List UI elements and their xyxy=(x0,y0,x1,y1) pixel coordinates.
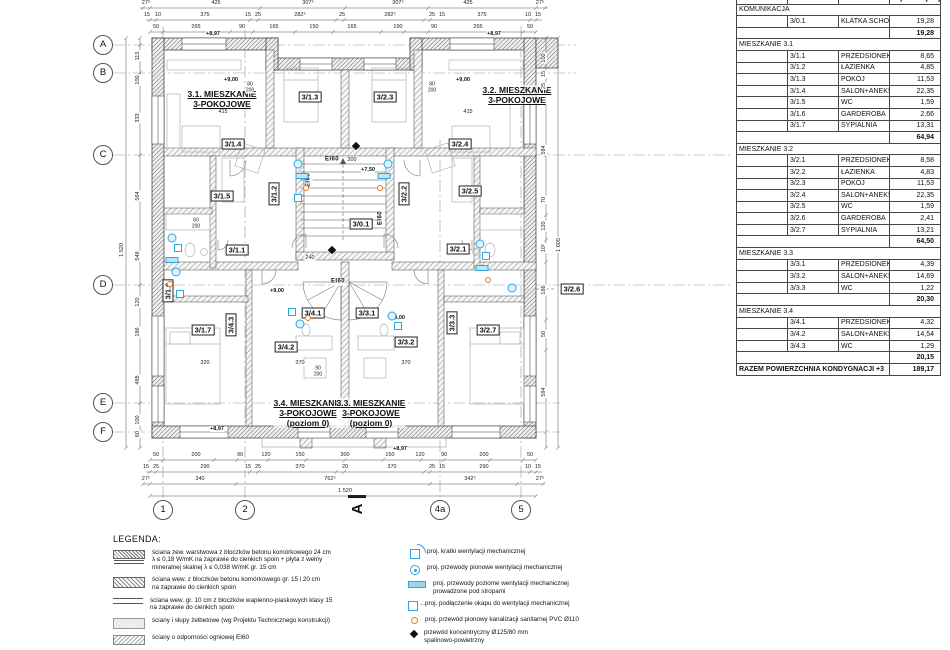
room-label: 3/4.3 xyxy=(226,314,237,337)
dimension-text: 265 xyxy=(190,24,201,30)
table-row: 3/2.3POKÓJ11,53 xyxy=(737,178,941,190)
table-cell xyxy=(737,271,788,283)
dimension-text: 60 200 xyxy=(192,219,200,230)
vent-grille-icon xyxy=(176,290,184,298)
vent-vertical-duct-icon xyxy=(172,268,181,277)
cell-area: 4,83 xyxy=(890,166,941,178)
dimension-text: 564 xyxy=(135,190,141,201)
dimension-text: 15 xyxy=(244,464,252,470)
cell-area: 13,21 xyxy=(890,224,941,236)
cell-nr: 3/1.2 xyxy=(788,62,839,74)
section-total: 20,15 xyxy=(890,352,941,364)
cell-room: POKÓJ xyxy=(839,74,890,86)
legend-item-text: proj. przewód pionowy kanalizacji sanita… xyxy=(425,616,579,624)
grand-total-label: RAZEM POWIERZCHNIA KONDYGNACJI +3 xyxy=(737,364,890,376)
cell-nr: 3/0.1 xyxy=(788,16,839,28)
grid-bubble: B xyxy=(93,63,113,83)
room-label: 3/4.2 xyxy=(275,342,298,353)
table-row: 3/1.6GARDEROBA2,66 xyxy=(737,108,941,120)
table-row: 3/3.1PRZEDSIONEK/SCHODY4,39 xyxy=(737,259,941,271)
table-cell xyxy=(737,340,788,352)
dimension-text: 425 xyxy=(462,0,473,6)
dimension-text: 307⁵ xyxy=(301,0,314,6)
level-marker: +9,00 xyxy=(456,77,470,83)
cell-nr: 3/1.6 xyxy=(788,108,839,120)
legend-item: proj. podłączenie okapu do wentylacji me… xyxy=(408,600,698,611)
vent-horizontal-duct-icon xyxy=(476,265,489,271)
legend-walls: LEGENDA: ściana zew. warstwowa z bloczkó… xyxy=(113,536,408,650)
section-total: 19,28 xyxy=(890,27,941,39)
table-row: 20,30 xyxy=(737,294,941,306)
legend-item: ściana wew. gr. 10 cm z bloczków wapienn… xyxy=(113,597,408,612)
room-label: 3/3.3 xyxy=(447,312,458,335)
dimension-text: 186 xyxy=(135,326,141,337)
cell-nr: 3/2.7 xyxy=(788,224,839,236)
cell-nr: 3/2.5 xyxy=(788,201,839,213)
legend-item: proj. przewód pionowy kanalizacji sanita… xyxy=(408,616,698,624)
table-row: 3/4.3WC1,29 xyxy=(737,340,941,352)
dimension-text: 10 xyxy=(154,12,162,18)
table-cell xyxy=(737,352,890,364)
vent-vertical-duct-icon xyxy=(388,312,397,321)
cell-room: SALON+ANEKS KUCHENNY xyxy=(839,190,890,202)
cell-room: ŁAZIENKA xyxy=(839,166,890,178)
dimension-text: 186 xyxy=(541,284,547,295)
table-cell xyxy=(737,108,788,120)
legend-item-text: proj. podłączenie okapu do wentylacji me… xyxy=(425,600,570,608)
dimension-text: 282⁵ xyxy=(383,12,396,18)
dimension-text: 27⁵ xyxy=(141,476,151,482)
cell-nr: 3/2.3 xyxy=(788,178,839,190)
dimension-text: 15 xyxy=(244,12,252,18)
dimension-text: 120 xyxy=(414,452,425,458)
dimension-text: 115 xyxy=(135,51,141,62)
table-row: 3/3.3WC1,22 xyxy=(737,282,941,294)
cell-nr: 3/3.1 xyxy=(788,259,839,271)
dimension-text: 25 xyxy=(338,12,346,18)
dimension-text: 90 xyxy=(440,452,448,458)
dimension-text: 25 xyxy=(152,464,160,470)
vent-horizontal-duct-icon xyxy=(166,257,179,263)
hatch1-legend-icon xyxy=(113,577,145,588)
table-row: 3/4.1PRZEDSIONEK/SCHODY4,32 xyxy=(737,317,941,329)
cell-area: 1,59 xyxy=(890,201,941,213)
dimension-text: 90 200 xyxy=(314,367,322,378)
legend-item-text: ściany o odporności ogniowej EI60 xyxy=(152,634,249,642)
cell-room: PRZEDSIONEK xyxy=(839,155,890,167)
vent-vertical-duct-icon xyxy=(294,160,303,169)
dimension-text: 80 200 xyxy=(428,83,436,94)
room-label: 3/2.1 xyxy=(447,244,470,255)
dimension-text: 307⁵ xyxy=(391,0,404,6)
dimension-text: 15 xyxy=(541,70,547,78)
grid-bubble: 4a xyxy=(430,500,450,520)
cell-area: 2,66 xyxy=(890,108,941,120)
level-marker: +9,00 xyxy=(270,288,284,294)
dimension-text: 25 xyxy=(254,464,262,470)
table-row: MIESZKANIE 3.3 xyxy=(737,248,941,260)
dimension-text: 165 xyxy=(268,24,279,30)
dimension-text: 282⁵ xyxy=(293,12,306,18)
section-name: MIESZKANIE 3.2 xyxy=(737,143,941,155)
dimension-text: 290 xyxy=(199,464,210,470)
legend-item: ściana wew. z bloczków betonu komórkoweg… xyxy=(113,576,408,591)
table-cell xyxy=(737,317,788,329)
room-label: 3/1.3 xyxy=(299,92,322,103)
dimension-text: 370 xyxy=(400,360,411,366)
dimension-text: 415 xyxy=(217,109,228,115)
apartment-title: 3.4. MIESZKANIE 3-POKOJOWE (poziom 0) xyxy=(274,398,343,428)
pvc-pipe-icon xyxy=(305,315,311,321)
grid-bubble: F xyxy=(93,422,113,442)
dimension-text: 25 xyxy=(428,12,436,18)
dimension-text: 50 xyxy=(152,24,160,30)
table-cell xyxy=(737,155,788,167)
grid-bubble: 5 xyxy=(511,500,531,520)
cell-nr: 3/1.3 xyxy=(788,74,839,86)
legend-item: proj. przewody poziome wentylacji mechan… xyxy=(408,580,698,595)
cell-area: 4,39 xyxy=(890,259,941,271)
cell-room: WC xyxy=(839,340,890,352)
room-label: 3/0.1 xyxy=(350,219,373,230)
table-row: 3/1.2ŁAZIENKA4,85 xyxy=(737,62,941,74)
cell-area: 13,31 xyxy=(890,120,941,132)
flue-legend-icon xyxy=(410,630,418,638)
cell-room: GARDEROBA xyxy=(839,213,890,225)
cell-area: 1,22 xyxy=(890,282,941,294)
vent-vertical-duct-icon xyxy=(296,320,305,329)
legend-item: proj. kratki wentylacji mechanicznej xyxy=(408,548,698,559)
legend-item-text: proj. przewody pionowe wentylacji mechan… xyxy=(427,564,562,572)
legend-item-text: proj. kratki wentylacji mechanicznej xyxy=(427,548,525,556)
room-label: 3/2.4 xyxy=(449,139,472,150)
cell-room: PRZEDSIONEK xyxy=(839,50,890,62)
dimension-text: 100 xyxy=(135,414,141,425)
table-row: 3/2.4SALON+ANEKS KUCHENNY22,35 xyxy=(737,190,941,202)
section-total: 20,30 xyxy=(890,294,941,306)
cell-nr: 3/2.1 xyxy=(788,155,839,167)
table-cell xyxy=(737,16,788,28)
room-label: 3/2.5 xyxy=(459,186,482,197)
legend-item-text: proj. przewody poziome wentylacji mechan… xyxy=(433,580,569,595)
cell-nr: 3/3.3 xyxy=(788,282,839,294)
hood-legend-icon xyxy=(408,601,418,611)
dimension-text: 90 xyxy=(238,24,246,30)
table-row: MIESZKANIE 3.1 xyxy=(737,39,941,51)
table-row: 3/0.1KLATKA SCHODOWA19,28 xyxy=(737,16,941,28)
cell-room: SALON+ANEKS KUCHENNY xyxy=(839,329,890,341)
level-marker: +8,97 xyxy=(206,31,220,37)
room-label: 3/2.3 xyxy=(374,92,397,103)
dimension-text: 150 xyxy=(294,452,305,458)
dimension-text: 150 xyxy=(308,24,319,30)
dimension-text: 342⁵ xyxy=(463,476,476,482)
table-cell xyxy=(737,282,788,294)
legend-item: przewód koncentryczny Ø125/80 mm spalino… xyxy=(408,629,698,644)
dimension-text: 20 xyxy=(341,464,349,470)
dimension-text: 100 xyxy=(541,52,547,63)
dimension-text: 80 200 xyxy=(246,83,254,94)
table-cell xyxy=(737,190,788,202)
cell-nr: 3/2.2 xyxy=(788,166,839,178)
table-row: 3/2.5WC1,59 xyxy=(737,201,941,213)
cell-area: 19,28 xyxy=(890,16,941,28)
table-cell xyxy=(737,50,788,62)
table-row: 3/2.2ŁAZIENKA4,83 xyxy=(737,166,941,178)
dimension-text: 27⁵ xyxy=(535,0,545,6)
legend-item: ściany i słupy żelbetowe (wg Projektu Te… xyxy=(113,617,408,629)
cell-nr: 3/4.1 xyxy=(788,317,839,329)
dimension-text: 190 xyxy=(392,24,403,30)
table-row: 3/2.6GARDEROBA2,41 xyxy=(737,213,941,225)
dimension-text: 90 xyxy=(236,452,244,458)
cell-area: 1,59 xyxy=(890,97,941,109)
table-cell xyxy=(737,166,788,178)
legend-item: ściana zew. warstwowa z bloczków betonu … xyxy=(113,549,408,572)
fire-rating-label: EI60 xyxy=(378,211,385,225)
cell-nr: 3/2.6 xyxy=(788,213,839,225)
table-row: 3/1.1PRZEDSIONEK8,65 xyxy=(737,50,941,62)
table-row: 20,15 xyxy=(737,352,941,364)
vent-grille-icon xyxy=(288,308,296,316)
cell-room: PRZEDSIONEK/SCHODY xyxy=(839,317,890,329)
table-cell xyxy=(737,236,890,248)
dimension-text: 200 xyxy=(190,452,201,458)
cell-nr: 3/4.2 xyxy=(788,329,839,341)
table-cell xyxy=(737,224,788,236)
cell-nr: 3/1.1 xyxy=(788,50,839,62)
dimension-text: 15 xyxy=(142,464,150,470)
table-row: MIESZKANIE 3.2 xyxy=(737,143,941,155)
table-row: 3/3.2SALON+ANEKS KUCHENNY14,69 xyxy=(737,271,941,283)
dimension-text: 370 xyxy=(386,464,397,470)
cell-room: SYPIALNIA xyxy=(839,224,890,236)
vent-grille-icon xyxy=(174,244,182,252)
cell-area: 14,54 xyxy=(890,329,941,341)
dimension-text: 15 xyxy=(438,464,446,470)
dimension-text: 200 xyxy=(478,452,489,458)
apartment-title: 3.3. MIESZKANIE 3-POKOJOWE (poziom 0) xyxy=(337,398,406,428)
dimension-text: 15 xyxy=(438,12,446,18)
table-row: 3/1.5WC1,59 xyxy=(737,97,941,109)
cell-area: 8,65 xyxy=(890,50,941,62)
dimension-text: 50 xyxy=(541,330,547,338)
pvc-pipe-icon xyxy=(485,277,491,283)
cell-area: 14,69 xyxy=(890,271,941,283)
dimension-text: 265 xyxy=(472,24,483,30)
room-label: 3/2.6 xyxy=(561,284,584,295)
room-label: 3/1.7 xyxy=(192,325,215,336)
room-label: 3/1.4 xyxy=(222,139,245,150)
grid-bubble: C xyxy=(93,145,113,165)
stipple-legend-icon xyxy=(113,618,145,629)
dimension-text: 1 520 xyxy=(119,242,125,258)
section-name: MIESZKANIE 3.1 xyxy=(737,39,941,51)
cell-room: POKÓJ xyxy=(839,178,890,190)
room-label: 3/2.7 xyxy=(477,325,500,336)
cell-area: 2,41 xyxy=(890,213,941,225)
table-cell xyxy=(737,294,890,306)
area-table: LOKALNRPomieszczenieużytkowa [m2]KOMUNIK… xyxy=(736,0,941,376)
dimension-text: 548 xyxy=(135,250,141,261)
room-label: 3/3.1 xyxy=(356,308,379,319)
cell-room: ŁAZIENKA xyxy=(839,62,890,74)
legend-item-text: ściana wew. z bloczków betonu komórkoweg… xyxy=(152,576,320,591)
cell-room: WC xyxy=(839,97,890,109)
room-label: 3/2.2 xyxy=(399,183,410,206)
cell-room: PRZEDSIONEK/SCHODY xyxy=(839,259,890,271)
pvc-pipe-icon xyxy=(167,281,173,287)
table-row: 3/4.2SALON+ANEKS KUCHENNY14,54 xyxy=(737,329,941,341)
cell-room: KLATKA SCHODOWA xyxy=(839,16,890,28)
table-row: 64,94 xyxy=(737,132,941,144)
cell-room: WC xyxy=(839,201,890,213)
hatch3-legend-icon xyxy=(113,635,145,645)
dimension-text: 25 xyxy=(541,82,547,90)
legend-item-text: przewód koncentryczny Ø125/80 mm spalino… xyxy=(424,629,528,644)
table-cell xyxy=(737,329,788,341)
dimension-text: 290 xyxy=(478,464,489,470)
lines-legend-icon xyxy=(113,598,143,604)
dimension-text: 120 xyxy=(541,220,547,231)
dimension-text: 375 xyxy=(199,12,210,18)
table-cell xyxy=(737,62,788,74)
dimension-text: 1 605 xyxy=(556,237,562,253)
level-marker: +9,00 xyxy=(224,77,238,83)
dimension-text: 27⁵ xyxy=(141,0,151,6)
dimension-text: 25 xyxy=(254,12,262,18)
dimension-text: 15 xyxy=(534,464,542,470)
level-marker: +8,97 xyxy=(487,31,501,37)
cell-nr: 3/1.4 xyxy=(788,85,839,97)
cell-nr: 3/1.5 xyxy=(788,97,839,109)
table-row: KOMUNIKACJA xyxy=(737,4,941,16)
cell-room: SYPIALNIA xyxy=(839,120,890,132)
legend-installations: proj. kratki wentylacji mechanicznejproj… xyxy=(408,548,698,649)
legend-item: proj. przewody pionowe wentylacji mechan… xyxy=(408,564,698,575)
dimension-text: 415 xyxy=(462,109,473,115)
fire-rating-label: EI60 xyxy=(325,157,339,164)
table-row: MIESZKANIE 3.4 xyxy=(737,306,941,318)
table-cell xyxy=(737,120,788,132)
vent-horizontal-duct-icon xyxy=(378,173,391,179)
sheet: ABCDEF124a5A3.1. MIESZKANIE 3-POKOJOWE3.… xyxy=(0,0,950,632)
concentric-flue-icon xyxy=(352,142,360,150)
table-cell xyxy=(737,178,788,190)
dimension-text: 340 xyxy=(194,476,205,482)
level-marker: +8,97 xyxy=(210,426,224,432)
legend-item-text: ściany i słupy żelbetowe (wg Projektu Te… xyxy=(152,617,330,625)
legend-item: ściany o odporności ogniowej EI60 xyxy=(113,634,408,645)
vent-horizontal-duct-icon xyxy=(296,173,309,179)
table-row: 19,28 xyxy=(737,27,941,39)
dimension-text: 425 xyxy=(210,0,221,6)
cell-area: 8,58 xyxy=(890,155,941,167)
table-cell xyxy=(737,85,788,97)
dimension-text: 120 xyxy=(135,296,141,307)
hpipe-legend-icon xyxy=(408,581,426,588)
grid-bubble: 1 xyxy=(153,500,173,520)
vent-grille-icon xyxy=(482,252,490,260)
dimension-text: 27⁵ xyxy=(535,476,545,482)
dimension-text: 488 xyxy=(135,374,141,385)
vent-vertical-duct-icon xyxy=(384,160,393,169)
cell-room: SALON+ANEKS KUCHENNY xyxy=(839,271,890,283)
level-marker: +7,50 xyxy=(361,167,375,173)
vpipe-legend-icon xyxy=(410,565,420,575)
table-row: 3/1.7SYPIALNIA13,31 xyxy=(737,120,941,132)
table-cell xyxy=(737,74,788,86)
grid-bubble: D xyxy=(93,275,113,295)
section-letter: A xyxy=(350,504,367,515)
section-name: MIESZKANIE 3.3 xyxy=(737,248,941,260)
grand-total-value: 189,17 xyxy=(890,364,941,376)
section-name: MIESZKANIE 3.4 xyxy=(737,306,941,318)
dimension-text: 150 xyxy=(384,452,395,458)
table-row: 3/2.1PRZEDSIONEK8,58 xyxy=(737,155,941,167)
cell-area: 11,53 xyxy=(890,178,941,190)
table-row: 3/2.7SYPIALNIA13,21 xyxy=(737,224,941,236)
dimension-text: 15 xyxy=(534,12,542,18)
cell-area: 11,53 xyxy=(890,74,941,86)
table-row: 3/1.3POKÓJ11,53 xyxy=(737,74,941,86)
vent-vertical-duct-icon xyxy=(476,240,485,249)
vent-grille-icon xyxy=(294,194,302,202)
cell-area: 22,35 xyxy=(890,190,941,202)
table-cell xyxy=(737,259,788,271)
dimension-text: 370 xyxy=(294,360,305,366)
room-label: 3/1.2 xyxy=(269,183,280,206)
cell-area: 1,29 xyxy=(890,340,941,352)
cell-nr: 3/1.7 xyxy=(788,120,839,132)
dimension-text: 90 xyxy=(430,24,438,30)
dimension-text: 584 xyxy=(541,144,547,155)
dimension-text: 1 520 xyxy=(337,488,353,494)
grid-bubble: 2 xyxy=(235,500,255,520)
dimension-text: 370 xyxy=(294,464,305,470)
cell-nr: 3/4.3 xyxy=(788,340,839,352)
dimension-text: 100 xyxy=(135,74,141,85)
section-total: 64,94 xyxy=(890,132,941,144)
legend-item-text: ściana zew. warstwowa z bloczków betonu … xyxy=(152,549,331,572)
cell-room: SALON+ANEKS KUCHENNY xyxy=(839,85,890,97)
dimension-text: 120 xyxy=(260,452,271,458)
vent-vertical-duct-icon xyxy=(508,284,517,293)
dimension-text: 50 xyxy=(526,452,534,458)
concentric-flue-icon xyxy=(328,246,336,254)
dimension-text: 300 xyxy=(346,157,357,163)
dimension-text: 15 xyxy=(143,12,151,18)
cell-area: 22,35 xyxy=(890,85,941,97)
cell-nr: 3/3.2 xyxy=(788,271,839,283)
cell-nr: 3/2.4 xyxy=(788,190,839,202)
table-cell xyxy=(737,213,788,225)
hatch2-legend-icon xyxy=(113,550,145,559)
dimension-text: 375 xyxy=(476,12,487,18)
fire-rating-label: EI60 xyxy=(331,279,345,286)
section-name: KOMUNIKACJA xyxy=(737,4,941,16)
pvc-legend-icon xyxy=(411,617,418,624)
table-row: 3/1.4SALON+ANEKS KUCHENNY22,35 xyxy=(737,85,941,97)
dimension-text: 10⁵ xyxy=(541,243,547,253)
dimension-text: 50 xyxy=(152,452,160,458)
table-cell xyxy=(737,201,788,213)
dimension-text: 762⁵ xyxy=(323,476,336,482)
dimension-text: 594 xyxy=(541,386,547,397)
table-cell xyxy=(737,97,788,109)
vent-vertical-duct-icon xyxy=(168,234,177,243)
room-label: 3/1.1 xyxy=(226,245,249,256)
